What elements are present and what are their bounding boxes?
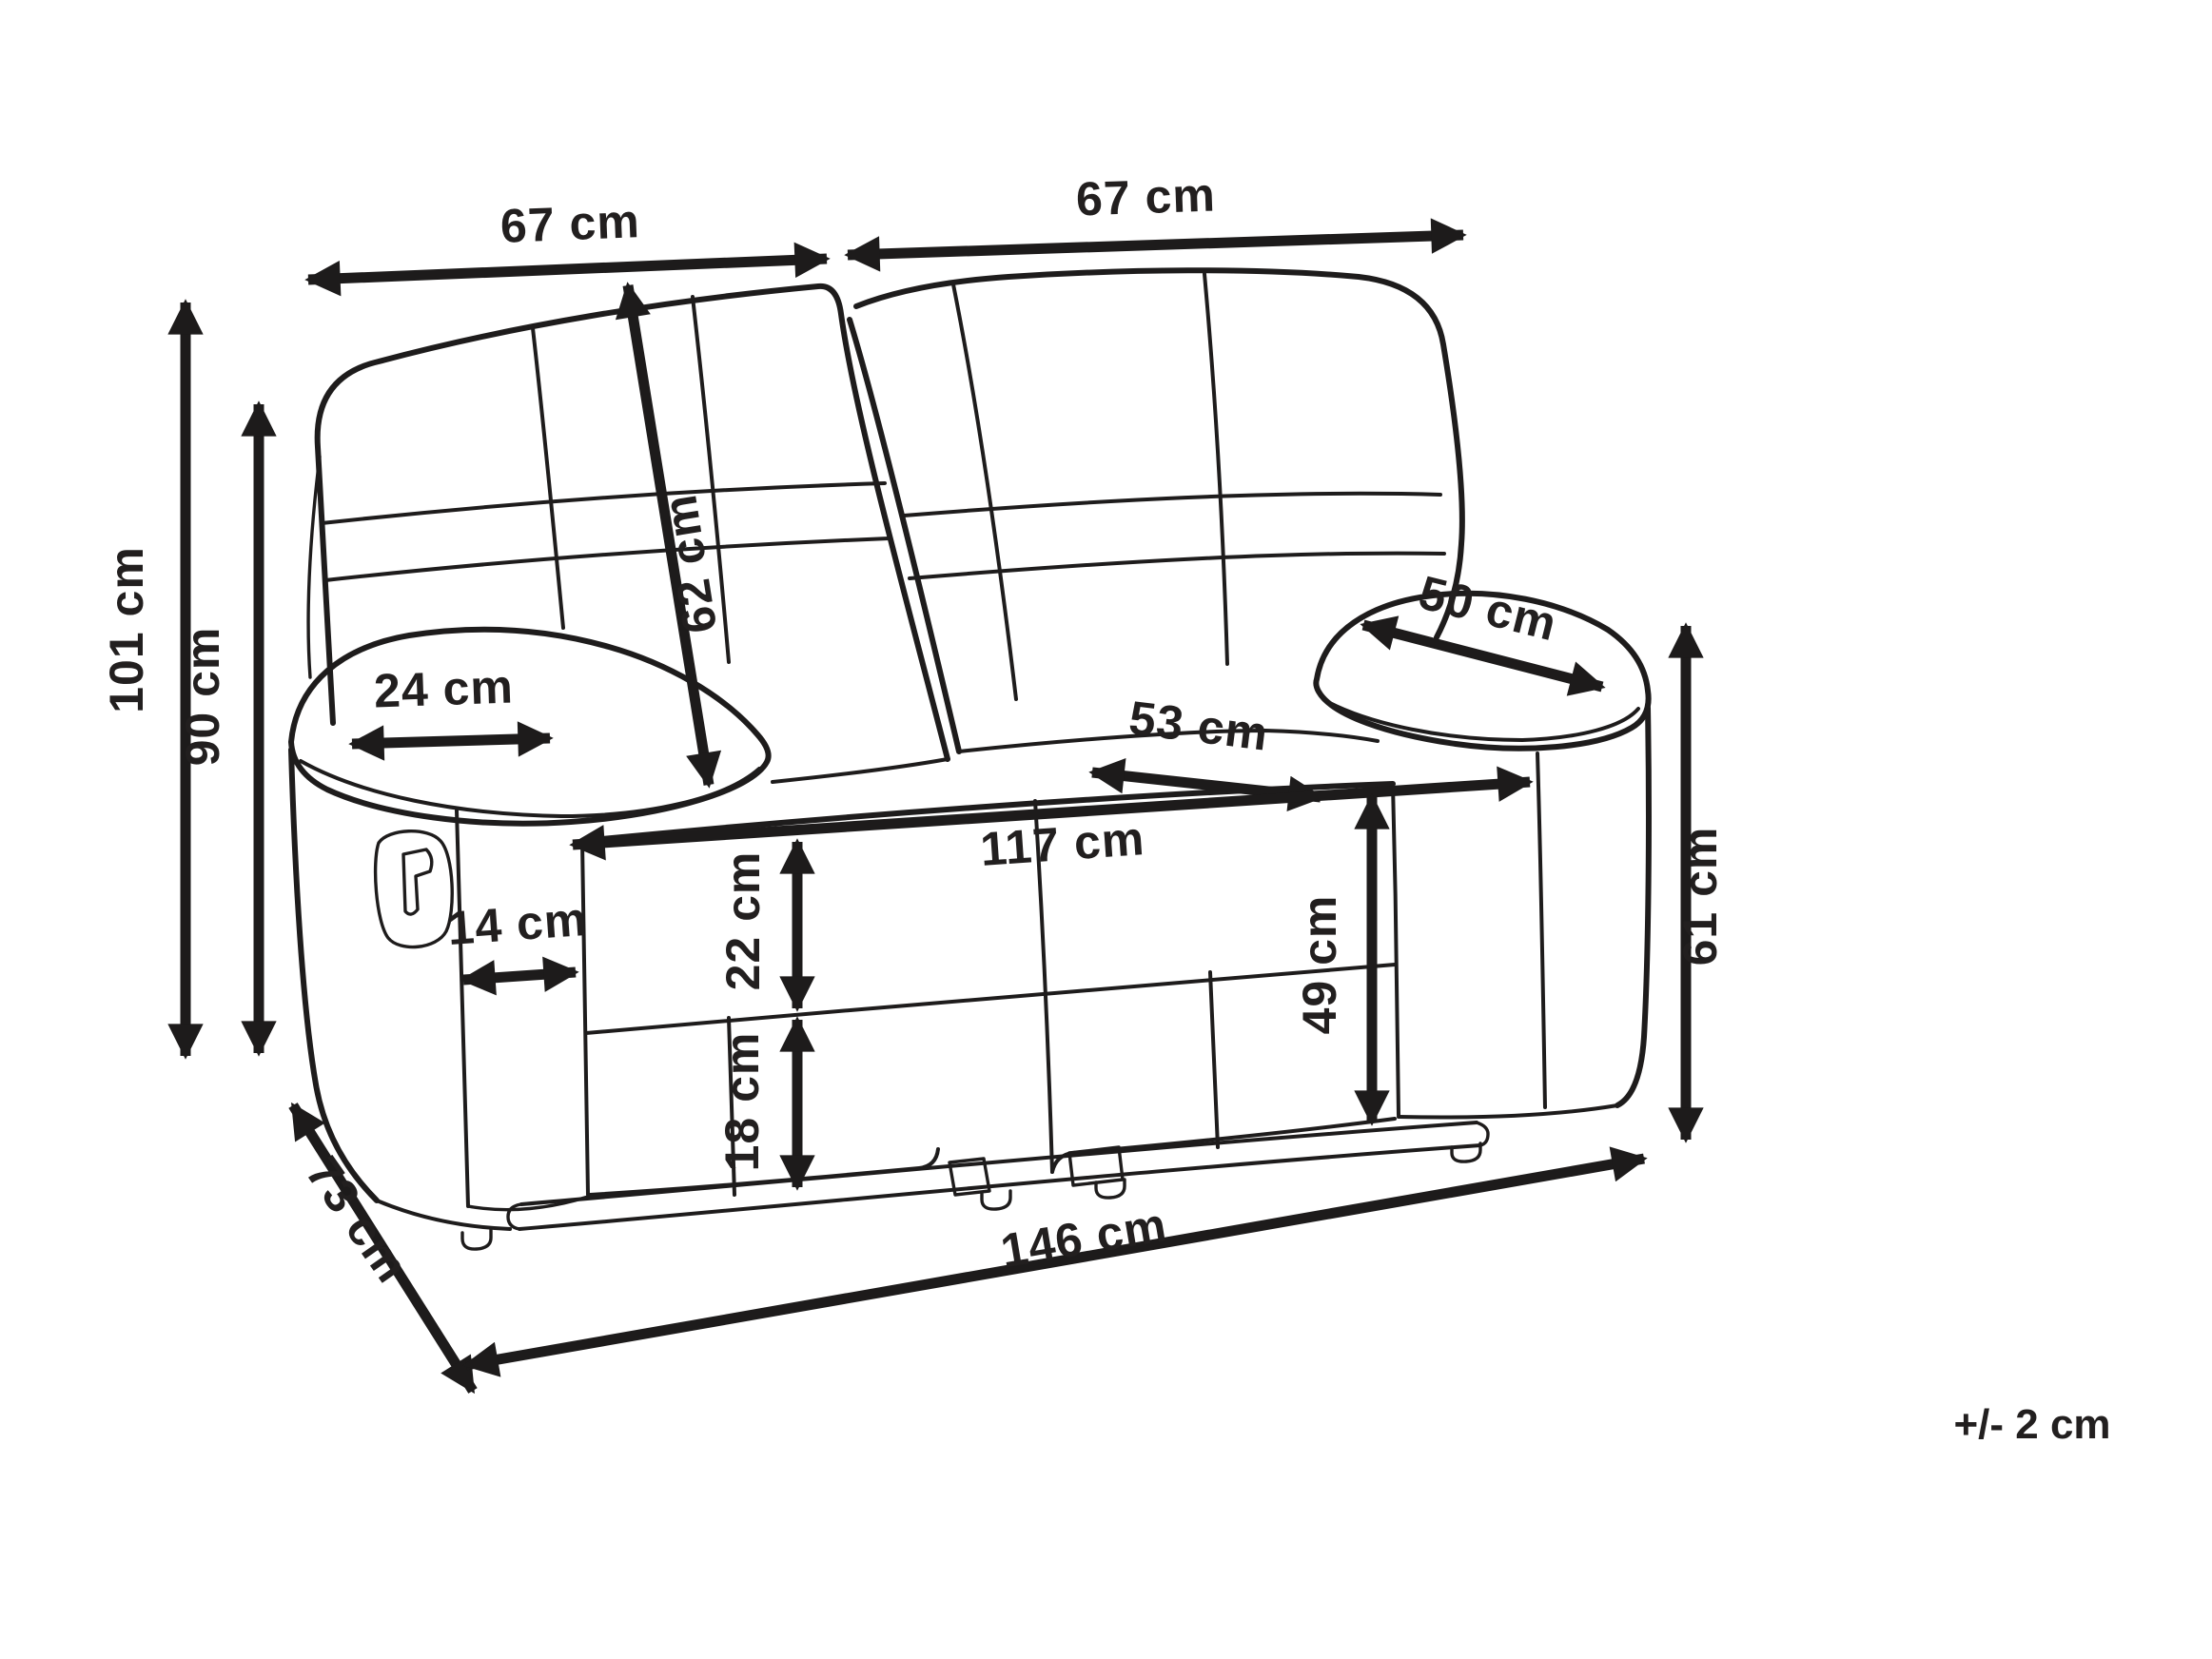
label-seat-width-right: 67 cm [1075,167,1217,225]
foot-mid-left [982,1191,1010,1209]
backrest-right-band-seam-bottom [910,554,1444,578]
label-seat-depth: 53 cm [1126,691,1272,760]
arrow-seat-width-right [848,235,1463,255]
label-seat-height: 49 cm [1293,895,1346,1035]
sofa-drawing [291,270,1649,1249]
label-armrest-side-height: 61 cm [1674,827,1727,966]
backrest-left-seam-vertical-1 [533,328,563,628]
armrest-right-bottom-edge [1399,1105,1617,1118]
backrest-right-seam-vertical-1 [953,284,1016,699]
base-seam-right [1210,972,1218,1147]
label-overall-height: 101 cm [100,546,153,713]
label-armrest-top-width: 24 cm [373,659,515,717]
label-armrest-front-width: 14 cm [446,892,589,955]
armrest-left-outer-edge [291,750,377,1200]
label-backrest-height: 90 cm [176,627,229,767]
label-base-height: 18 cm [715,1032,769,1172]
recliner-handle-lever-icon [403,849,432,914]
armrest-left-pad-crease [301,761,759,816]
armrest-right-outer-edge [1617,708,1649,1105]
backrest-left-bottom-edge [773,759,948,782]
base-rail-right-cap [1477,1122,1488,1145]
label-overall-depth: 73 cm [296,1147,420,1292]
armrest-left-front-seam [457,810,468,1206]
label-seat-front-height: 22 cm [716,851,770,991]
label-seat-width-left: 67 cm [499,194,641,253]
armrest-right-pad-crease [1324,700,1638,740]
backrest-right-band-seam-top [904,494,1440,516]
backrest-right-seam-vertical-2 [1204,274,1227,664]
armrest-right-front-seam [1537,753,1545,1107]
tolerance-note: +/- 2 cm [1953,1401,2110,1448]
arrow-seat-width-left [308,259,827,280]
dimension-diagram-canvas: 67 cm 67 cm 101 cm 90 cm 62 cm 24 cm 50 … [0,0,2212,1659]
base-rail-top-line [521,1122,1477,1204]
arrow-armrest-front-width [463,972,576,980]
seat-base-horizontal-seam [586,965,1395,1033]
backrest-right-outline [856,270,1462,637]
arrow-armrest-top-width [352,738,550,744]
recliner-handle-icon [376,831,453,947]
backrest-left-band-seam-bottom [325,538,889,580]
label-inner-seat-width: 117 cm [979,811,1146,876]
backrest-split-right-edge [850,320,959,751]
seat-right-boundary [1393,784,1399,1115]
sofa-dimension-diagram: 67 cm 67 cm 101 cm 90 cm 62 cm 24 cm 50 … [0,0,2212,1659]
seat-right-bottom-edge [1052,1119,1395,1172]
label-overall-width: 146 cm [997,1198,1170,1278]
foot-front-left [462,1230,491,1249]
backrest-left-band-seam-top [322,483,885,523]
armrest-left-bottom-edge [377,1200,510,1229]
